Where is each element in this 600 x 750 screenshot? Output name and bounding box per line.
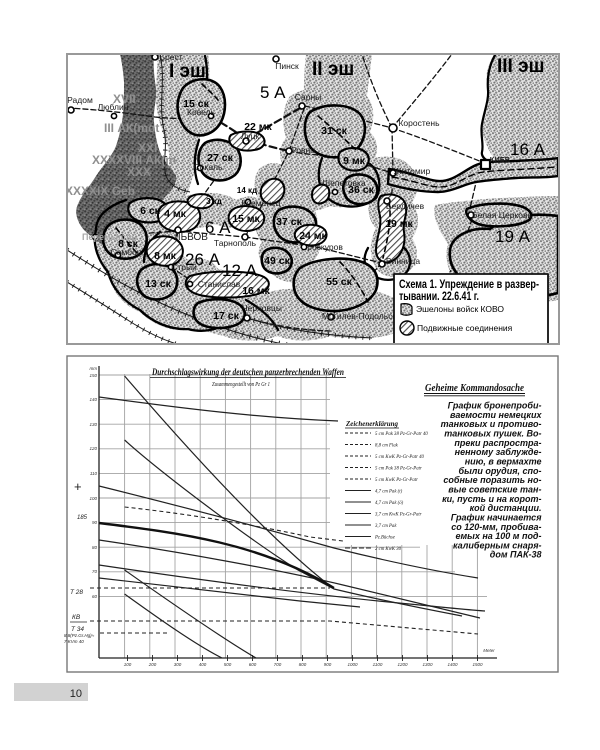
svg-text:Сокаль: Сокаль: [194, 162, 223, 172]
svg-text:Ковель: Ковель: [187, 107, 216, 117]
svg-text:Zeichenerklärung: Zeichenerklärung: [345, 420, 398, 428]
svg-text:6 А: 6 А: [205, 218, 231, 237]
svg-text:Meter: Meter: [483, 648, 495, 653]
svg-text:Пинск: Пинск: [275, 61, 299, 71]
svg-text:185: 185: [77, 515, 88, 521]
svg-text:19 мк: 19 мк: [385, 218, 413, 230]
svg-text:3 кд: 3 кд: [206, 197, 222, 206]
svg-text:4,7 cm Pak (t): 4,7 cm Pak (t): [375, 490, 403, 495]
svg-text:5 cm Pak 38 Pz-Gr-Patr 40: 5 cm Pak 38 Pz-Gr-Patr 40: [375, 432, 428, 437]
svg-text:2 cm KwK 30: 2 cm KwK 30: [375, 547, 402, 552]
svg-text:800: 800: [299, 662, 307, 667]
svg-text:Шепетовка: Шепетовка: [322, 178, 366, 188]
svg-text:Durchschlagswirkung der deutsc: Durchschlagswirkung der deutschen panzer…: [151, 367, 344, 377]
svg-text:Коростень: Коростень: [398, 118, 440, 128]
svg-text:3,7 cm KwK Pz-Gr-Patr: 3,7 cm KwK Pz-Gr-Patr: [375, 513, 422, 518]
svg-text:8,8(Pz.Gr.Hg)≈: 8,8(Pz.Gr.Hg)≈: [64, 633, 95, 638]
svg-text:тывании. 22.6.41 г.: тывании. 22.6.41 г.: [399, 291, 479, 303]
svg-text:Винница: Винница: [386, 256, 420, 266]
svg-text:Самбор: Самбор: [110, 247, 141, 257]
svg-text:100: 100: [89, 496, 97, 501]
svg-text:Т 34: Т 34: [71, 626, 84, 633]
svg-text:900: 900: [324, 662, 332, 667]
svg-text:9 мк: 9 мк: [343, 155, 366, 167]
svg-text:Бердичев: Бердичев: [386, 201, 425, 211]
svg-text:37 ск: 37 ск: [276, 216, 302, 228]
svg-text:КВ: КВ: [72, 614, 81, 621]
svg-text:150: 150: [89, 373, 97, 378]
svg-text:XXX: XXX: [127, 165, 151, 179]
svg-text:mm: mm: [90, 366, 98, 371]
svg-text:Ровно: Ровно: [291, 145, 315, 155]
svg-text:XXXXIX Geb: XXXXIX Geb: [65, 184, 135, 198]
svg-text:130: 130: [89, 422, 97, 427]
svg-text:Черновцы: Черновцы: [242, 303, 282, 313]
svg-text:КИЕВ: КИЕВ: [490, 155, 511, 164]
svg-text:Подвижные соединения: Подвижные соединения: [417, 323, 513, 333]
svg-text:8,8 cm Flak: 8,8 cm Flak: [375, 444, 399, 449]
svg-text:Pz.Büchse: Pz.Büchse: [374, 536, 396, 541]
svg-text:70: 70: [92, 569, 98, 574]
svg-text:Проскуров: Проскуров: [301, 242, 343, 252]
svg-text:90: 90: [92, 520, 98, 525]
svg-text:6 ск: 6 ск: [140, 205, 161, 217]
svg-text:Тарнополь: Тарнополь: [214, 238, 257, 248]
svg-text:Т 28: Т 28: [70, 589, 83, 596]
svg-text:5 cm KwK Pz-Gr-Patr 40: 5 cm KwK Pz-Gr-Patr 40: [375, 455, 425, 460]
svg-text:I эш: I эш: [169, 61, 206, 82]
svg-text:Житомир: Житомир: [394, 166, 431, 176]
svg-text:Сарны: Сарны: [295, 92, 322, 102]
svg-text:XVII: XVII: [113, 92, 136, 106]
svg-text:5 cm KwK Pz-Gr-Patr: 5 cm KwK Pz-Gr-Patr: [375, 478, 418, 483]
svg-text:+: +: [74, 479, 82, 494]
svg-text:Перемышль: Перемышль: [82, 232, 137, 242]
svg-text:13 ск: 13 ск: [145, 278, 171, 290]
svg-text:80: 80: [92, 545, 98, 550]
svg-text:31 ск: 31 ск: [321, 125, 347, 137]
svg-text:100: 100: [124, 662, 132, 667]
svg-text:110: 110: [90, 471, 98, 476]
svg-text:12 А: 12 А: [222, 261, 258, 280]
svg-text:Белая Церковь: Белая Церковь: [472, 210, 532, 220]
svg-text:1400: 1400: [447, 662, 458, 667]
svg-text:5 А: 5 А: [260, 83, 286, 102]
svg-text:55 ск: 55 ск: [326, 276, 352, 288]
svg-text:Эшелоны войск КОВО: Эшелоны войск КОВО: [416, 304, 504, 314]
svg-text:300: 300: [174, 662, 182, 667]
svg-text:8 мк: 8 мк: [154, 250, 177, 262]
svg-text:Кременец: Кременец: [241, 198, 280, 208]
svg-text:120: 120: [89, 446, 97, 451]
svg-text:10: 10: [70, 688, 82, 700]
svg-text:700: 700: [274, 662, 282, 667]
svg-text:5 cm Pak 38 Pz-Gr-Patr: 5 cm Pak 38 Pz-Gr-Patr: [375, 467, 422, 472]
svg-text:7 KVm 40: 7 KVm 40: [64, 639, 84, 644]
svg-text:III эш: III эш: [497, 56, 544, 77]
svg-text:49 ск: 49 ск: [264, 255, 290, 267]
svg-text:1300: 1300: [422, 662, 433, 667]
svg-text:15 мк: 15 мк: [232, 213, 260, 225]
svg-text:ЛЬВОВ: ЛЬВОВ: [174, 232, 208, 243]
svg-text:Zusammengestellt von Pz Gr 1: Zusammengestellt von Pz Gr 1: [212, 381, 270, 388]
svg-text:600: 600: [249, 662, 257, 667]
svg-text:400: 400: [199, 662, 207, 667]
svg-text:Луцк: Луцк: [241, 131, 260, 141]
svg-text:Geheime Kommandosache: Geheime Kommandosache: [425, 382, 524, 394]
svg-text:1000: 1000: [347, 662, 358, 667]
svg-text:дом ПАК-38: дом ПАК-38: [490, 550, 542, 560]
svg-text:1500: 1500: [472, 662, 483, 667]
svg-text:200: 200: [148, 662, 157, 667]
svg-text:17 ск: 17 ск: [213, 310, 239, 322]
svg-text:140: 140: [89, 397, 97, 402]
svg-text:Могилев-Подольск: Могилев-Подольск: [322, 311, 397, 321]
svg-text:24 мк: 24 мк: [299, 230, 327, 242]
svg-text:19 А: 19 А: [495, 227, 531, 246]
svg-text:Стрый: Стрый: [171, 262, 197, 272]
svg-text:Станислав: Станислав: [198, 279, 241, 289]
svg-text:1200: 1200: [397, 662, 408, 667]
svg-text:14 кд: 14 кд: [237, 186, 257, 195]
svg-text:16 А: 16 А: [510, 140, 546, 159]
svg-text:60: 60: [92, 594, 98, 599]
svg-text:500: 500: [224, 662, 232, 667]
svg-text:16 мк: 16 мк: [242, 285, 270, 297]
svg-text:3,7 cm Pak: 3,7 cm Pak: [375, 524, 397, 529]
svg-text:Схема 1. Упреждение в развер-: Схема 1. Упреждение в развер-: [399, 279, 539, 291]
svg-text:III АК(mot: III АК(mot: [104, 121, 159, 135]
svg-text:II эш: II эш: [312, 59, 354, 80]
svg-text:Радом: Радом: [67, 95, 93, 105]
svg-text:4 мк: 4 мк: [164, 208, 187, 220]
svg-text:4,7 cm Pak (ö): 4,7 cm Pak (ö): [375, 501, 404, 506]
svg-text:1100: 1100: [373, 662, 383, 667]
